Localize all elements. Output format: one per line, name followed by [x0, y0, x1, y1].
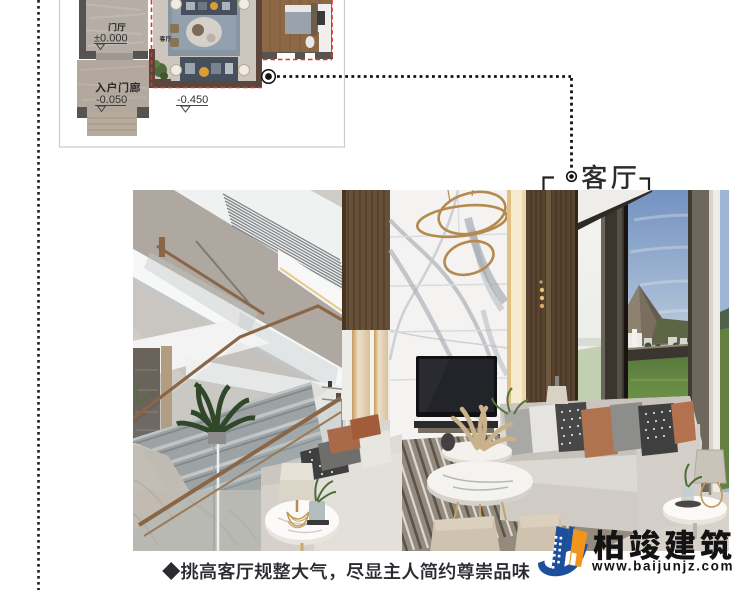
- svg-text:-0.050: -0.050: [96, 94, 127, 106]
- svg-text:-0.450: -0.450: [177, 94, 208, 106]
- svg-text:±0.000: ±0.000: [94, 33, 128, 45]
- svg-text:www.baijunjz.com: www.baijunjz.com: [591, 559, 734, 574]
